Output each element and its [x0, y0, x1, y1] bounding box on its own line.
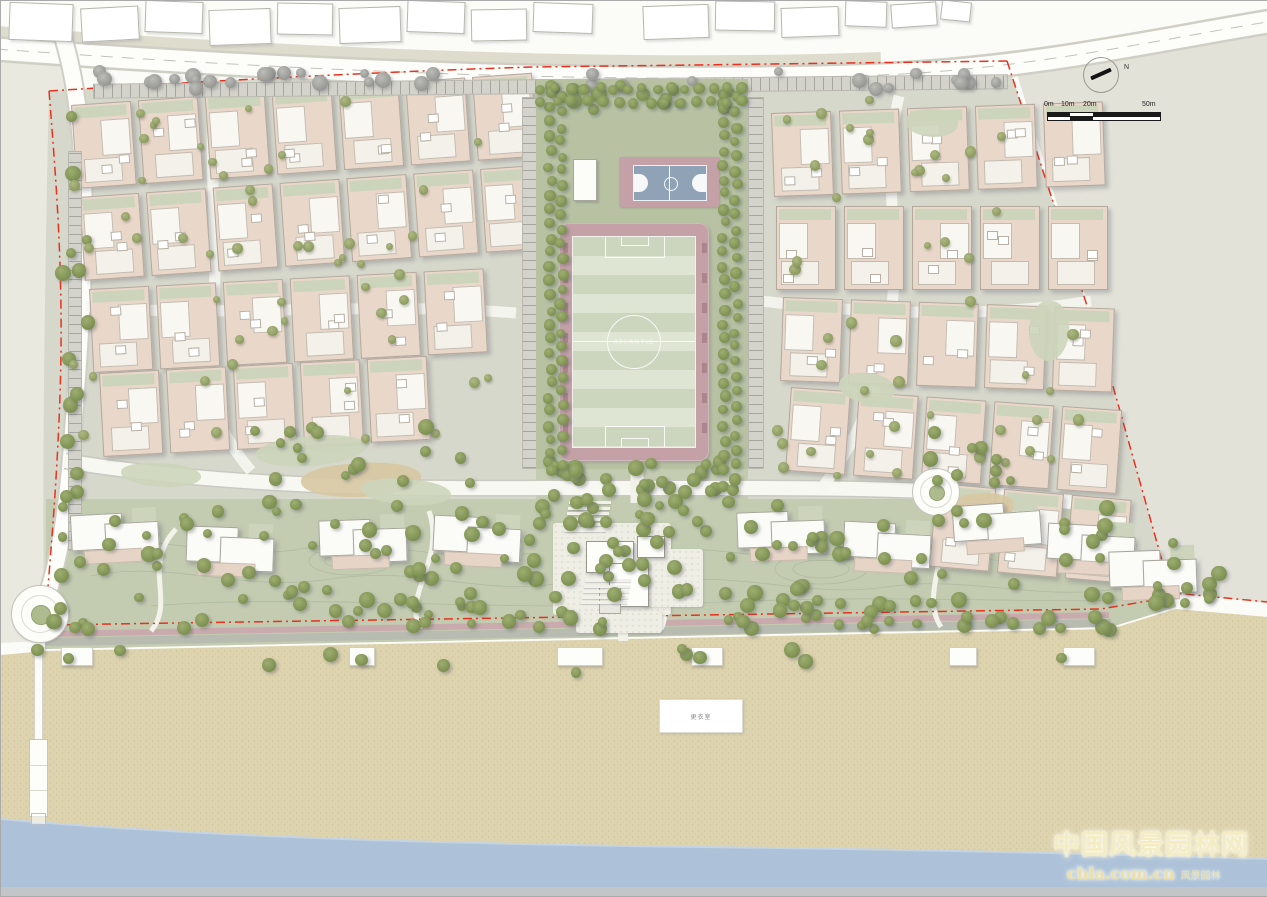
scale-segment: [1070, 117, 1093, 120]
pier-platform: [29, 739, 48, 817]
basketball-key-right: [692, 174, 706, 192]
roundabout-island: [929, 485, 945, 501]
basketball-court: [633, 165, 707, 201]
scale-label-10: 10m: [1061, 101, 1075, 108]
running-track: ATLANTIS: [559, 223, 709, 461]
beach-facility-label: 更衣室: [659, 699, 743, 733]
basketball-key-left: [634, 174, 648, 192]
clubhouse-court: [599, 586, 621, 614]
roundabout-island: [31, 605, 51, 625]
scale-label-20: 20m: [1083, 101, 1097, 108]
beach-facility-text: 更衣室: [690, 712, 711, 721]
basketball-court-apron: [619, 157, 719, 207]
scale-bar-row: [1047, 116, 1161, 121]
site-master-plan: ATLANTIS 更衣室 N 0m 10m 20m: [0, 0, 1267, 897]
soccer-field: ATLANTIS: [572, 236, 696, 448]
scale-bar: 0m 10m 20m 50m: [1046, 101, 1166, 125]
sports-pavilion: [573, 159, 597, 201]
basketball-center-circle: [664, 177, 678, 191]
clubhouse-plaza-south: [576, 611, 662, 633]
field-watermark-text: ATLANTIS: [614, 339, 655, 346]
north-indicator: N: [1083, 51, 1143, 97]
pier-end: [31, 813, 46, 825]
scale-label-50: 50m: [1142, 101, 1156, 108]
pier-walkway: [34, 649, 43, 741]
north-label: N: [1124, 64, 1129, 71]
clubhouse-building-annex: [637, 536, 665, 558]
parking-strip-west: [68, 151, 82, 551]
goal-box-bottom: [621, 438, 649, 447]
goal-box-top: [621, 237, 649, 246]
parking-strip-field-east: [748, 97, 764, 469]
pier-segment-line: [30, 765, 47, 766]
roundabout-west: [11, 585, 69, 643]
scale-label-0: 0m: [1044, 101, 1054, 108]
center-circle: ATLANTIS: [607, 315, 661, 369]
roundabout-east: [912, 468, 960, 516]
pier-segment-line: [30, 790, 47, 791]
